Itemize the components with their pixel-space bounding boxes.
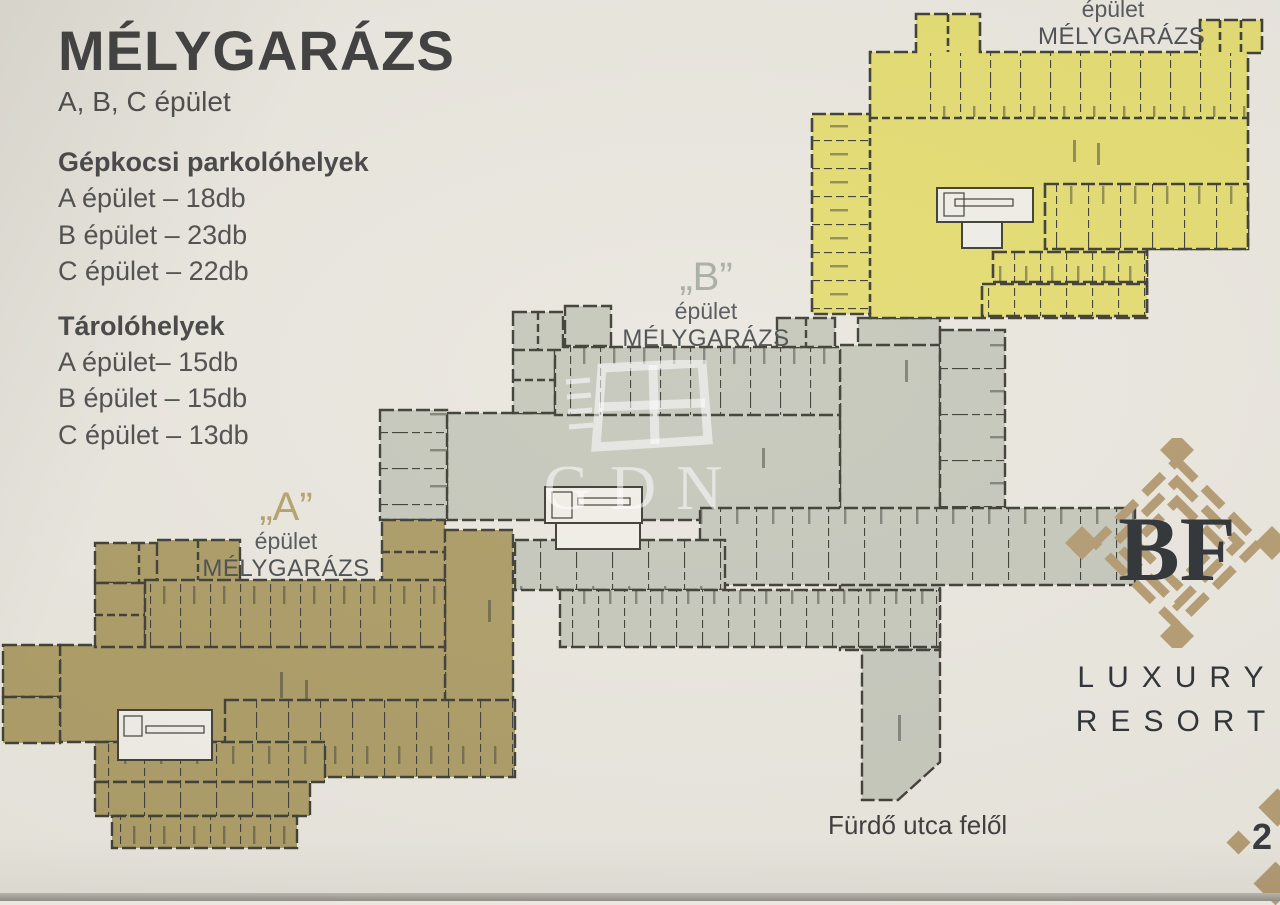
plan-b-building: épület <box>618 298 794 325</box>
storage-item-a: A épület– 15db <box>58 344 455 381</box>
storage-section: Tárolóhelyek A épület– 15db B épület – 1… <box>58 308 455 454</box>
storage-item-c: C épület – 13db <box>58 417 455 454</box>
plan-b-letter: „B” <box>618 256 794 298</box>
page-number: 2 <box>1252 816 1272 858</box>
storage-item-b: B épület – 15db <box>58 380 455 417</box>
plan-b-name: MÉLYGARÁZS <box>618 325 794 353</box>
logo-word-resort: RESORT <box>1062 705 1280 739</box>
brand-logo: BF LUXURY RESORT <box>1062 438 1280 739</box>
plan-c-drawing <box>812 14 1262 318</box>
plan-c-name: MÉLYGARÁZS <box>1038 23 1188 51</box>
parking-item-a: A épület – 18db <box>58 180 455 217</box>
parking-item-b: B épület – 23db <box>58 217 455 254</box>
storage-heading: Tárolóhelyek <box>58 308 455 344</box>
plan-b-label: „B” épület MÉLYGARÁZS <box>618 256 794 353</box>
plan-c-label: épület MÉLYGARÁZS <box>1038 0 1188 51</box>
plan-a-building: épület <box>198 528 374 555</box>
info-panel: MÉLYGARÁZS A, B, C épület Gépkocsi parko… <box>58 20 455 453</box>
page-subtitle: A, B, C épület <box>58 84 455 120</box>
page-title: MÉLYGARÁZS <box>58 20 455 82</box>
logo-monogram: BF <box>1062 496 1280 602</box>
parking-heading: Gépkocsi parkolóhelyek <box>58 144 455 180</box>
parking-section: Gépkocsi parkolóhelyek A épület – 18db B… <box>58 144 455 290</box>
street-label: Fürdő utca felől <box>828 810 1007 841</box>
photo-edge-band <box>0 893 1280 901</box>
plan-c-building: épület <box>1038 0 1188 23</box>
brochure-page: MÉLYGARÁZS A, B, C épület Gépkocsi parko… <box>0 0 1280 901</box>
plan-a-label: „A” épület MÉLYGARÁZS <box>198 486 374 583</box>
plan-a-letter: „A” <box>198 486 374 528</box>
plan-a-name: MÉLYGARÁZS <box>198 555 374 583</box>
parking-item-c: C épület – 22db <box>58 253 455 290</box>
logo-word-luxury: LUXURY <box>1062 661 1280 695</box>
